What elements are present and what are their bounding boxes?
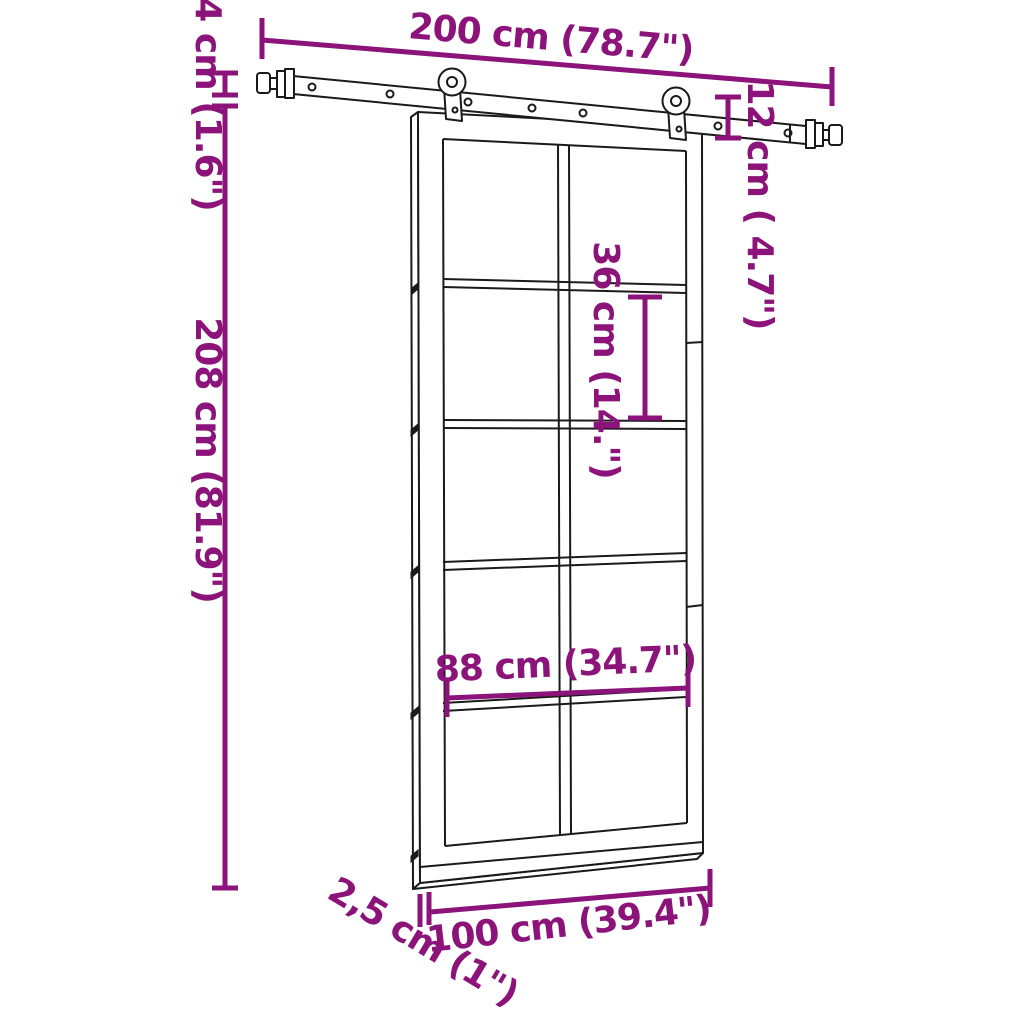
- left-hanger-hub: [447, 77, 457, 87]
- rail-left-stop-neck: [270, 78, 277, 89]
- rail-right-stop-collar-1: [806, 120, 815, 148]
- door: [411, 112, 703, 889]
- door-right-stile-joint-upper: [686, 342, 703, 343]
- dimension-label-hanger-drop: 12 cm ( 4.7"): [739, 81, 780, 330]
- door-right-stile-inner-edge: [686, 151, 687, 823]
- rail-right-stop-collar-2: [815, 123, 823, 146]
- dimension-diagram: 200 cm (78.7") 4 cm (1.6") 208 cm (81.9"…: [0, 0, 1024, 1024]
- dimension-label-rail-length: 200 cm (78.7"): [407, 6, 695, 71]
- rail-left-stop-collar-1: [277, 71, 285, 97]
- dimension-label-total-height: 208 cm (81.9"): [187, 317, 228, 603]
- rail-right-stop-plate: [829, 125, 842, 145]
- diagram-canvas: 200 cm (78.7") 4 cm (1.6") 208 cm (81.9"…: [0, 0, 1024, 1024]
- door-mullion-2-bottom: [443, 428, 686, 429]
- rail-left-stop-plate: [257, 73, 270, 93]
- dimension-total-height: 208 cm (81.9"): [187, 106, 238, 888]
- rail-left-stop-collar-2: [285, 69, 294, 98]
- right-hanger-hub: [671, 96, 681, 106]
- dimension-label-pane-height: 36 cm (14."): [585, 241, 626, 478]
